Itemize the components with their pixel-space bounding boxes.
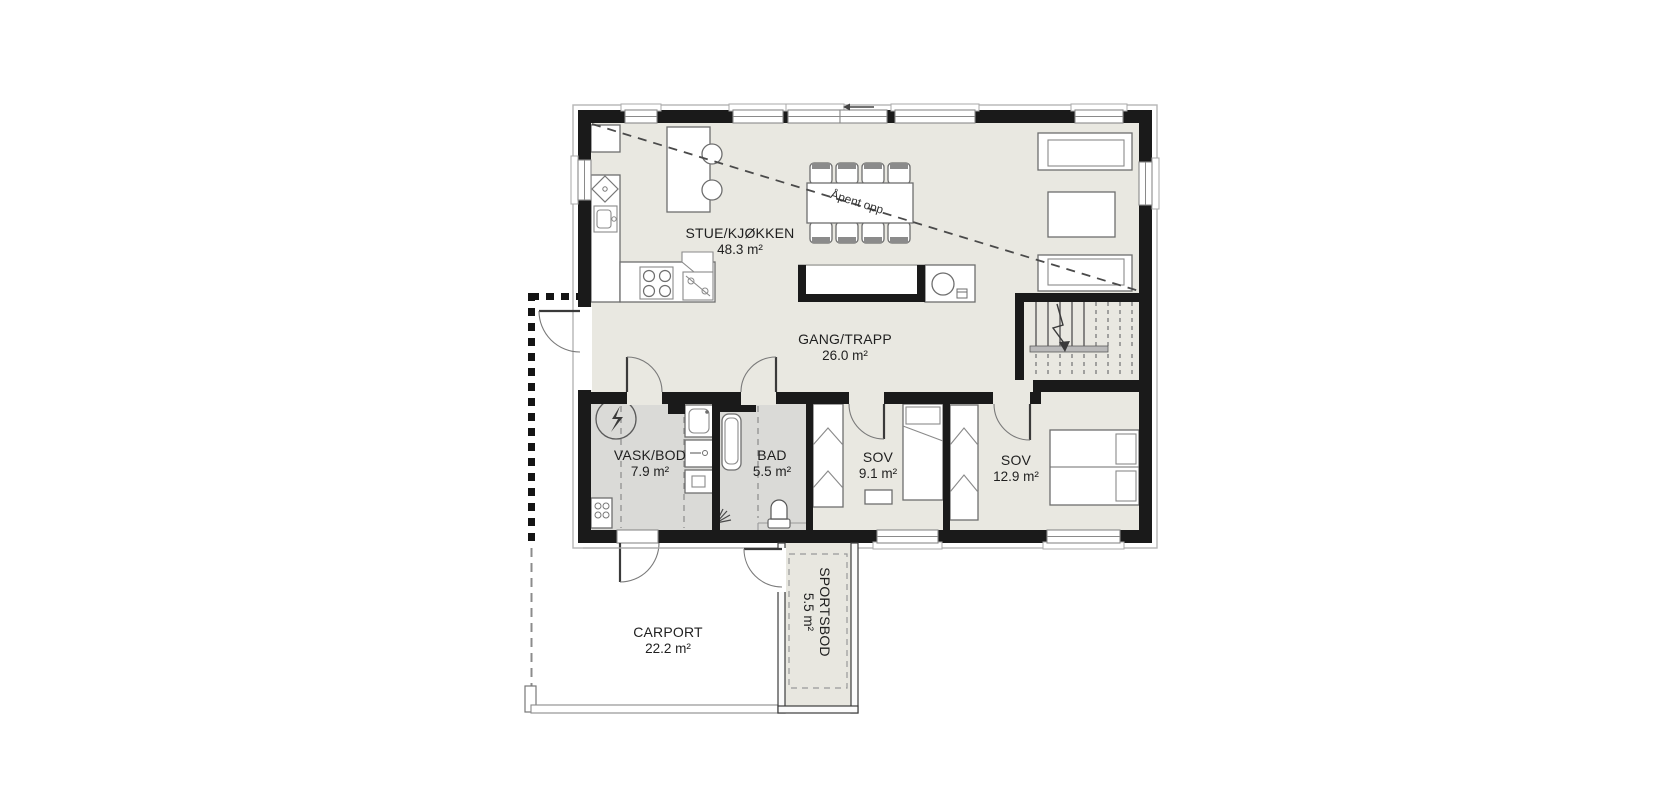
room-label-vask: VASK/BOD	[614, 447, 686, 463]
wall-stairs-sov2	[1033, 380, 1139, 392]
utility-sink-icon	[591, 498, 612, 528]
room-area-sov2: 12.9 m²	[993, 469, 1039, 484]
sofa	[1038, 255, 1132, 291]
washing-machine-icon	[685, 405, 713, 437]
wardrobe	[950, 405, 978, 520]
room-label-stue: STUE/KJØKKEN	[686, 225, 795, 241]
sportsbod-wall-bottom	[778, 706, 858, 713]
room-area-sportsbod: 5.5 m²	[801, 593, 816, 632]
nightstand	[865, 490, 892, 504]
room-label-sov2: SOV	[1001, 452, 1032, 468]
room-area-gang: 26.0 m²	[822, 348, 868, 363]
wall-notch-vask	[668, 404, 685, 414]
bar-stool	[702, 180, 722, 200]
single-bed	[903, 404, 943, 500]
cabinet-icon	[685, 470, 713, 493]
window	[891, 104, 979, 123]
wall-vask-bad	[712, 404, 720, 530]
sportsbod-door	[744, 548, 786, 592]
window	[571, 156, 591, 204]
wall-jog	[1033, 380, 1041, 404]
window	[873, 530, 942, 549]
floor-plan-canvas: STUE/KJØKKEN 48.3 m² GANG/TRAPP 26.0 m² …	[0, 0, 1670, 800]
floor-plan-page: STUE/KJØKKEN 48.3 m² GANG/TRAPP 26.0 m² …	[0, 0, 1670, 800]
wall-bad-sov1	[806, 404, 813, 530]
double-bed	[1050, 430, 1139, 505]
wall-notch-bad	[720, 404, 756, 412]
room-label-bad: BAD	[757, 447, 786, 463]
room-label-sportsbod: SPORTSBOD	[817, 567, 833, 656]
window	[786, 104, 844, 123]
wall-stairs-top	[1015, 293, 1139, 302]
window	[1043, 530, 1124, 549]
sportsbod	[744, 543, 858, 713]
carport-beam	[531, 705, 778, 713]
wall-stairs-left	[1015, 302, 1024, 380]
room-area-bad: 5.5 m²	[753, 464, 792, 479]
room-area-sov1: 9.1 m²	[859, 466, 898, 481]
stair-rail	[1030, 346, 1108, 352]
room-area-carport: 22.2 m²	[645, 641, 691, 656]
window	[1071, 104, 1127, 123]
coffee-table	[1048, 192, 1115, 237]
room-label-carport: CARPORT	[633, 624, 703, 640]
window	[729, 104, 787, 123]
wardrobe	[813, 404, 843, 507]
bathtub-icon	[722, 414, 741, 470]
window	[621, 104, 661, 123]
room-area-vask: 7.9 m²	[631, 464, 670, 479]
carport-entry-door	[617, 530, 659, 582]
dryer-icon	[685, 440, 713, 467]
bar-stool	[702, 144, 722, 164]
entrance-door	[539, 307, 592, 390]
fridge-cabinet	[591, 125, 620, 152]
room-label-gang: GANG/TRAPP	[798, 331, 892, 347]
window	[1139, 158, 1159, 209]
wall-sov1-sov2	[943, 404, 950, 530]
sportsbod-wall-right	[851, 543, 858, 713]
sliding-door	[840, 104, 887, 124]
sofa	[1038, 133, 1132, 170]
water-heater-icon	[925, 265, 975, 302]
room-area-stue: 48.3 m²	[717, 242, 763, 257]
room-label-sov1: SOV	[863, 449, 894, 465]
kitchen-island-halfwall	[798, 265, 925, 302]
